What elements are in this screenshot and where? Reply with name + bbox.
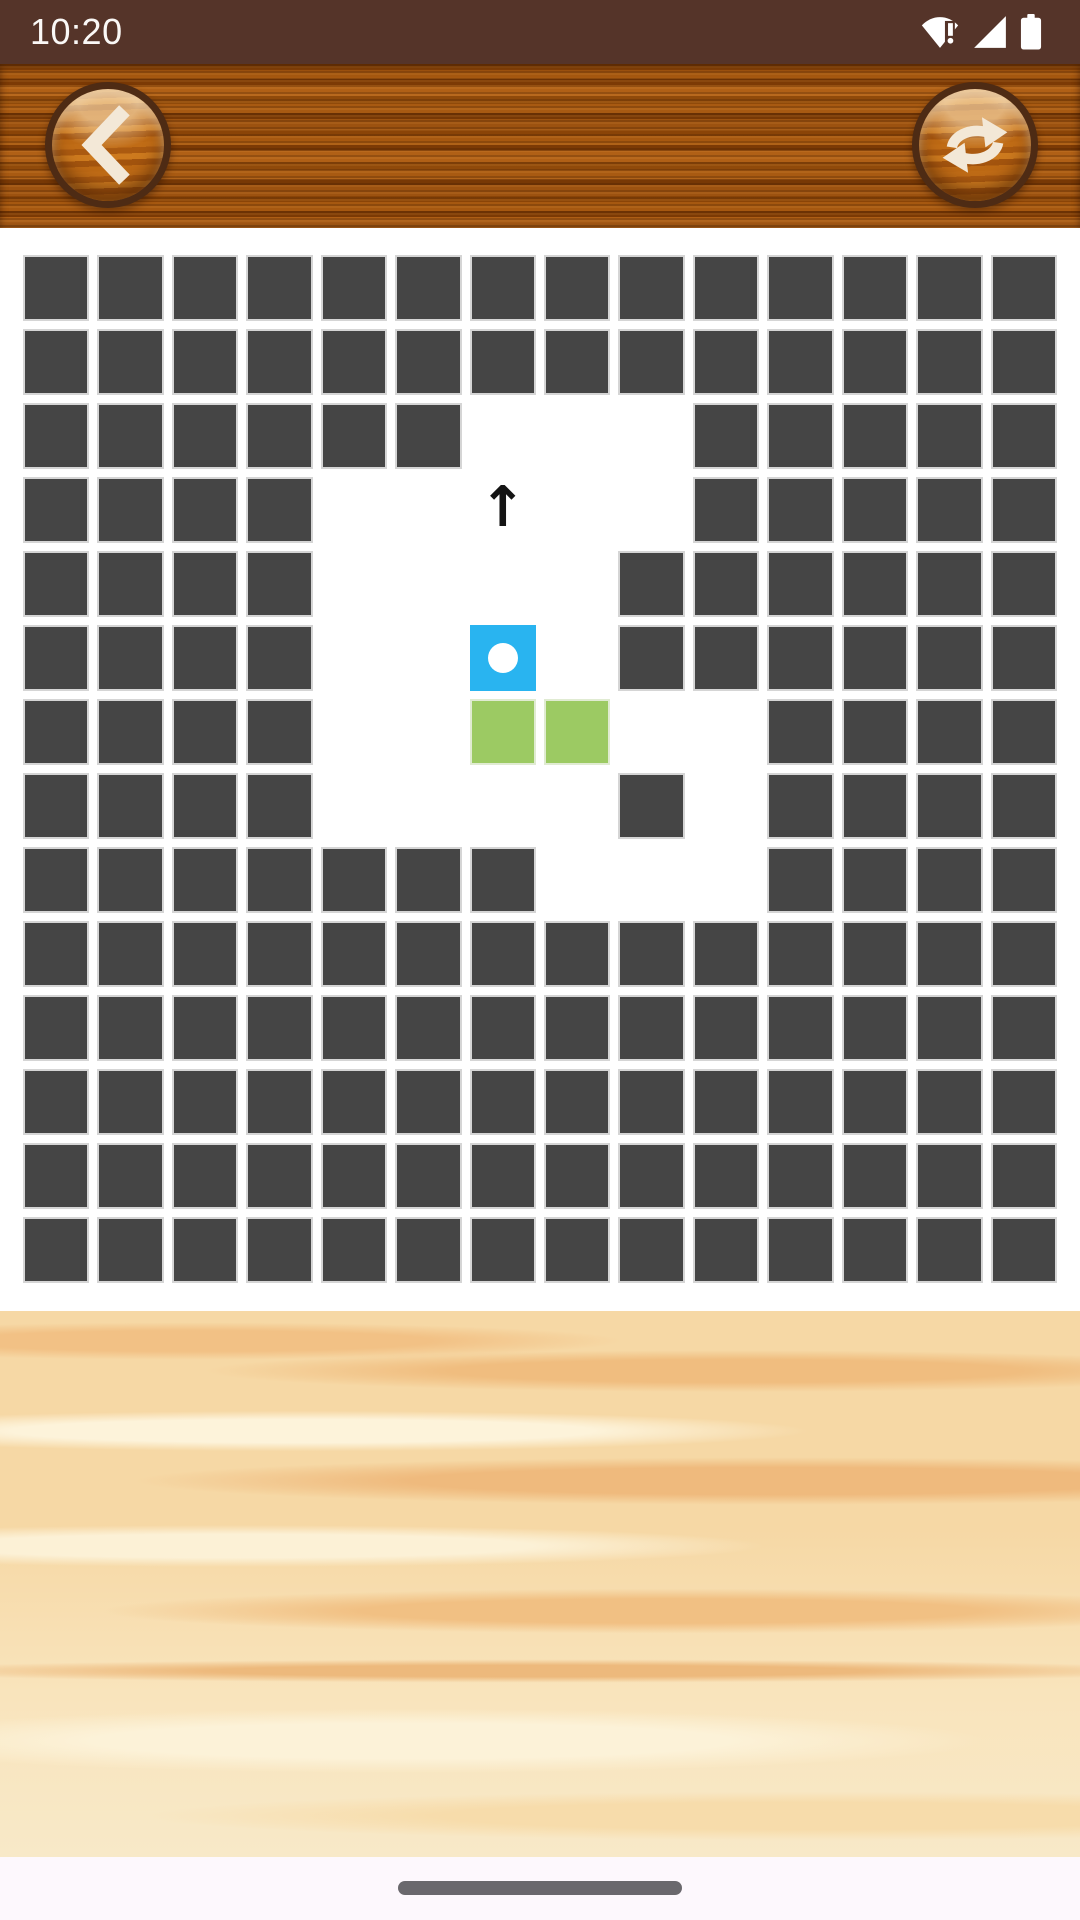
wall-cell [842, 477, 908, 543]
wall-cell [842, 1143, 908, 1209]
wifi-alert-icon [920, 16, 960, 49]
wall-cell [470, 847, 536, 913]
wall-cell [916, 625, 982, 691]
wall-cell [693, 255, 759, 321]
wall-cell [991, 477, 1057, 543]
wall-cell [991, 625, 1057, 691]
wall-cell [23, 847, 89, 913]
wall-cell [916, 1143, 982, 1209]
wall-cell [991, 1143, 1057, 1209]
wall-cell [321, 403, 387, 469]
empty-cell [693, 699, 759, 765]
cellular-signal-icon [973, 15, 1007, 49]
wall-cell [246, 1143, 312, 1209]
empty-cell [395, 477, 461, 543]
wall-cell [916, 847, 982, 913]
wall-cell [693, 1069, 759, 1135]
empty-cell [321, 699, 387, 765]
wall-cell [916, 551, 982, 617]
wall-cell [395, 921, 461, 987]
empty-cell [693, 773, 759, 839]
wall-cell [97, 847, 163, 913]
wall-cell [916, 921, 982, 987]
wall-cell [246, 625, 312, 691]
wall-cell [23, 329, 89, 395]
wall-cell [693, 329, 759, 395]
wall-cell [97, 551, 163, 617]
wall-cell [246, 329, 312, 395]
wall-cell [23, 1069, 89, 1135]
wall-cell [23, 699, 89, 765]
empty-cell [395, 773, 461, 839]
empty-cell [321, 551, 387, 617]
wall-cell [395, 995, 461, 1061]
wall-cell [470, 921, 536, 987]
empty-cell [470, 403, 536, 469]
wall-cell [693, 403, 759, 469]
wall-cell [767, 1069, 833, 1135]
wall-cell [991, 773, 1057, 839]
wall-cell [246, 921, 312, 987]
wall-cell [842, 625, 908, 691]
wall-cell [916, 1069, 982, 1135]
wall-cell [97, 1143, 163, 1209]
wall-cell [618, 995, 684, 1061]
wall-cell [172, 699, 238, 765]
wall-cell [395, 1069, 461, 1135]
wall-cell [916, 699, 982, 765]
empty-cell [618, 847, 684, 913]
wall-cell [246, 551, 312, 617]
goal-cell[interactable] [544, 699, 610, 765]
wall-cell [991, 847, 1057, 913]
empty-cell [618, 403, 684, 469]
wall-cell [618, 1143, 684, 1209]
wall-cell [172, 1069, 238, 1135]
wall-cell [23, 403, 89, 469]
wall-cell [97, 773, 163, 839]
wall-cell [246, 995, 312, 1061]
wall-cell [618, 329, 684, 395]
wall-cell [767, 773, 833, 839]
wall-cell [395, 847, 461, 913]
wall-cell [842, 1069, 908, 1135]
wall-cell [544, 1069, 610, 1135]
wall-cell [767, 921, 833, 987]
wall-cell [618, 625, 684, 691]
wall-cell [246, 699, 312, 765]
wall-cell [321, 1069, 387, 1135]
up-arrow-icon: ↑ [479, 480, 526, 536]
wall-cell [321, 921, 387, 987]
wall-cell [97, 477, 163, 543]
wall-cell [767, 1143, 833, 1209]
wall-cell [97, 329, 163, 395]
wall-cell [23, 773, 89, 839]
empty-cell [693, 847, 759, 913]
wall-cell [991, 995, 1057, 1061]
wall-cell [470, 995, 536, 1061]
wall-cell [23, 477, 89, 543]
wall-cell [842, 403, 908, 469]
wall-cell [916, 1217, 982, 1283]
wall-cell [470, 1069, 536, 1135]
wall-cell [693, 1217, 759, 1283]
wall-cell [23, 255, 89, 321]
wall-cell [544, 1143, 610, 1209]
wall-cell [991, 699, 1057, 765]
wall-cell [470, 329, 536, 395]
empty-cell [395, 551, 461, 617]
wall-cell [23, 1143, 89, 1209]
wall-cell [842, 773, 908, 839]
empty-cell [321, 477, 387, 543]
wall-cell [618, 255, 684, 321]
wall-cell [842, 329, 908, 395]
wall-cell [544, 921, 610, 987]
wall-cell [246, 1069, 312, 1135]
wall-cell [842, 1217, 908, 1283]
wall-cell [767, 995, 833, 1061]
wall-cell [172, 921, 238, 987]
wall-cell [767, 329, 833, 395]
status-bar: 10:20 [0, 0, 1080, 64]
wall-cell [97, 921, 163, 987]
game-header [0, 64, 1080, 228]
wall-cell [916, 329, 982, 395]
wall-cell [618, 921, 684, 987]
wall-cell [693, 921, 759, 987]
empty-cell [470, 773, 536, 839]
player-dot [488, 643, 518, 673]
wall-cell [470, 1217, 536, 1283]
empty-cell [321, 773, 387, 839]
status-time: 10:20 [30, 11, 123, 53]
wall-cell [97, 699, 163, 765]
wall-cell [23, 921, 89, 987]
wall-cell [23, 625, 89, 691]
wall-cell [246, 773, 312, 839]
wall-cell [767, 1217, 833, 1283]
wall-cell [916, 995, 982, 1061]
wall-cell [618, 773, 684, 839]
wall-cell [246, 403, 312, 469]
wall-cell [767, 477, 833, 543]
empty-cell [395, 699, 461, 765]
wall-cell [97, 995, 163, 1061]
wall-cell [916, 255, 982, 321]
gesture-pill[interactable] [398, 1881, 682, 1895]
wall-cell [172, 625, 238, 691]
wall-cell [842, 699, 908, 765]
wall-cell [172, 847, 238, 913]
wall-cell [991, 255, 1057, 321]
player-cell[interactable] [470, 625, 536, 691]
wall-cell [97, 255, 163, 321]
wall-cell [618, 551, 684, 617]
empty-cell [544, 625, 610, 691]
wall-cell [23, 1217, 89, 1283]
wall-cell [916, 403, 982, 469]
arrow-cell: ↑ [470, 477, 536, 543]
wall-cell [470, 255, 536, 321]
wall-cell [842, 921, 908, 987]
wall-cell [172, 329, 238, 395]
wall-cell [693, 995, 759, 1061]
wall-cell [618, 1069, 684, 1135]
wall-cell [618, 1217, 684, 1283]
wall-cell [544, 255, 610, 321]
empty-cell [544, 551, 610, 617]
wall-cell [693, 477, 759, 543]
wall-cell [172, 1217, 238, 1283]
wall-cell [842, 255, 908, 321]
wall-cell [395, 403, 461, 469]
wall-cell [172, 1143, 238, 1209]
restart-button[interactable] [912, 82, 1038, 208]
wall-cell [246, 1217, 312, 1283]
wall-cell [991, 403, 1057, 469]
wall-cell [23, 995, 89, 1061]
empty-cell [544, 847, 610, 913]
empty-cell [544, 773, 610, 839]
empty-cell [470, 551, 536, 617]
wall-cell [842, 995, 908, 1061]
wall-cell [544, 329, 610, 395]
empty-cell [618, 477, 684, 543]
wall-cell [321, 255, 387, 321]
refresh-arrows-icon [938, 112, 1012, 178]
wall-cell [767, 255, 833, 321]
wall-cell [97, 403, 163, 469]
wall-cell [916, 773, 982, 839]
wall-cell [991, 1217, 1057, 1283]
wall-cell [97, 1069, 163, 1135]
wall-cell [991, 921, 1057, 987]
goal-cell[interactable] [470, 699, 536, 765]
wall-cell [842, 551, 908, 617]
wall-cell [97, 1217, 163, 1283]
wall-cell [693, 1143, 759, 1209]
empty-cell [395, 625, 461, 691]
wall-cell [321, 1143, 387, 1209]
wall-cell [246, 477, 312, 543]
wall-cell [395, 329, 461, 395]
wall-cell [172, 403, 238, 469]
wall-cell [767, 551, 833, 617]
wall-cell [395, 255, 461, 321]
empty-cell [321, 625, 387, 691]
empty-cell [544, 477, 610, 543]
back-button[interactable] [45, 82, 171, 208]
wall-cell [767, 699, 833, 765]
wall-cell [172, 773, 238, 839]
wall-cell [97, 625, 163, 691]
wall-cell [172, 477, 238, 543]
status-icons [920, 14, 1042, 50]
game-board-area: ↑ [0, 228, 1080, 1311]
system-nav-bar [0, 1857, 1080, 1920]
wall-cell [767, 847, 833, 913]
wall-cell [767, 403, 833, 469]
wall-cell [693, 625, 759, 691]
wall-cell [23, 551, 89, 617]
wall-cell [991, 551, 1057, 617]
battery-icon [1020, 14, 1042, 50]
wall-cell [470, 1143, 536, 1209]
wall-cell [321, 995, 387, 1061]
wall-cell [246, 847, 312, 913]
wall-cell [172, 255, 238, 321]
wall-cell [395, 1143, 461, 1209]
wood-panel [0, 1311, 1080, 1857]
puzzle-grid[interactable]: ↑ [23, 255, 1057, 1283]
wall-cell [991, 1069, 1057, 1135]
wall-cell [767, 625, 833, 691]
wall-cell [991, 329, 1057, 395]
empty-cell [618, 699, 684, 765]
wall-cell [321, 1217, 387, 1283]
app-screen: 10:20 [0, 0, 1080, 1920]
wall-cell [172, 551, 238, 617]
wall-cell [395, 1217, 461, 1283]
empty-cell [544, 403, 610, 469]
wall-cell [842, 847, 908, 913]
wall-cell [172, 995, 238, 1061]
wall-cell [321, 329, 387, 395]
wall-cell [544, 995, 610, 1061]
chevron-left-icon [76, 103, 140, 187]
wall-cell [321, 847, 387, 913]
wall-cell [246, 255, 312, 321]
wall-cell [544, 1217, 610, 1283]
wall-cell [693, 551, 759, 617]
wall-cell [916, 477, 982, 543]
